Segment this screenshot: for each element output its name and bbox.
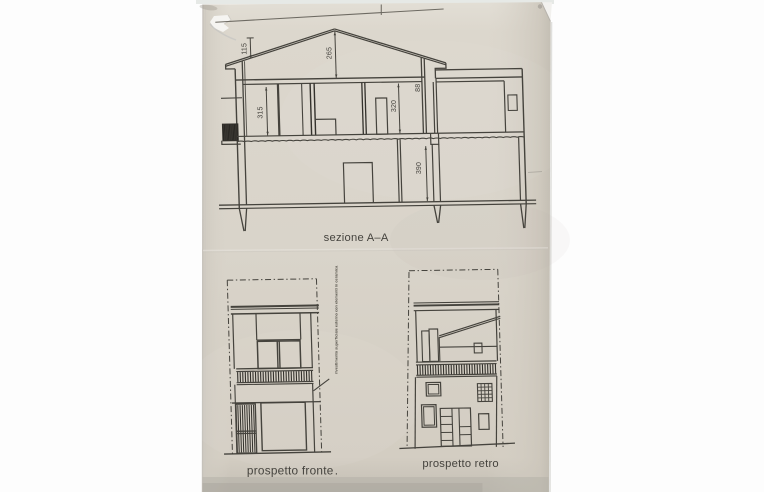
svg-text:315: 315 — [258, 106, 265, 118]
svg-text:prospetto retro: prospetto retro — [422, 458, 499, 470]
svg-text:320: 320 — [391, 100, 398, 112]
svg-text:sezione A–A: sezione A–A — [324, 232, 389, 244]
svg-text:prospetto fronte .: prospetto fronte . — [247, 463, 338, 477]
svg-text:390: 390 — [416, 162, 423, 174]
svg-text:rivestimento superficiale este: rivestimento superficiale esterno con el… — [334, 265, 339, 374]
svg-text:88: 88 — [415, 84, 422, 92]
svg-text:115: 115 — [242, 43, 249, 55]
svg-text:265: 265 — [327, 47, 334, 59]
